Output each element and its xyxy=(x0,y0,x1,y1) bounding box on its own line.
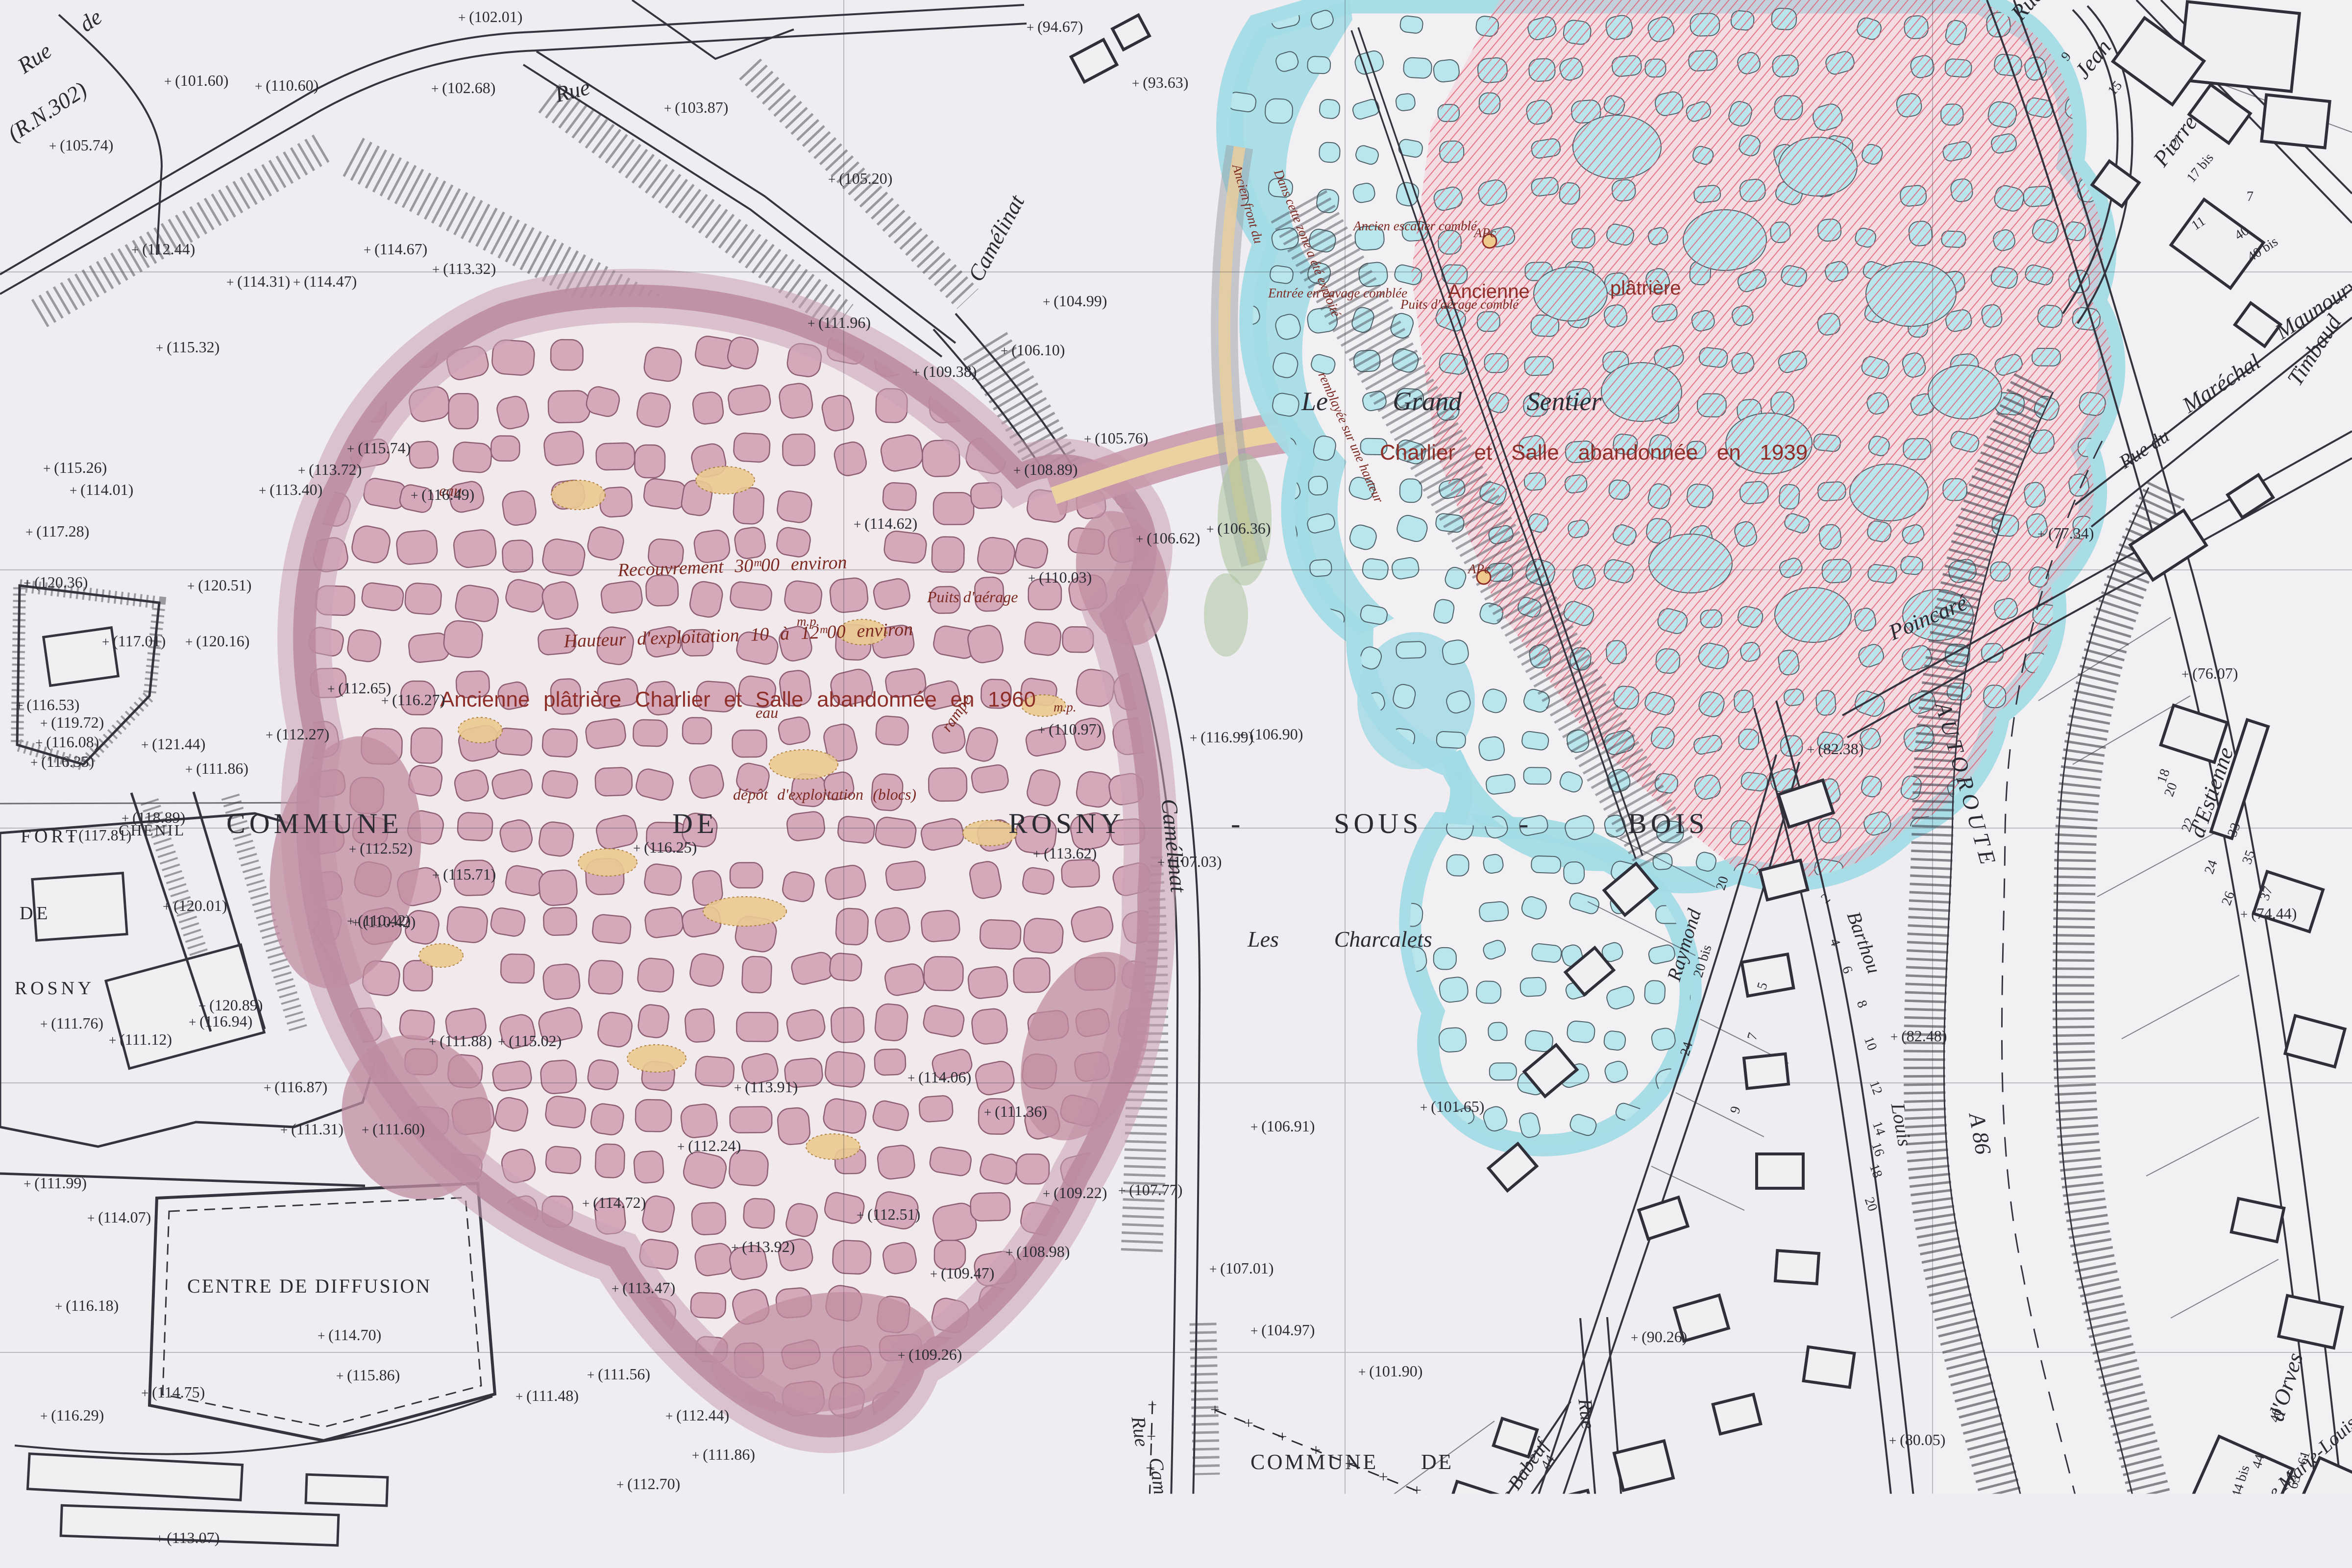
svg-text:+: + xyxy=(1144,1522,1153,1541)
svg-text:+: + xyxy=(1378,1468,1388,1486)
svg-text:+: + xyxy=(1244,1414,1253,1432)
svg-text:+: + xyxy=(1146,1459,1155,1477)
svg-text:+: + xyxy=(1412,1482,1421,1500)
map-base-layer: +++++++++++++++++++ xyxy=(0,0,2352,1568)
svg-text:+: + xyxy=(1479,1509,1489,1527)
svg-text:+: + xyxy=(1552,1542,1562,1560)
svg-text:+: + xyxy=(1210,1401,1220,1419)
svg-text:+: + xyxy=(1580,1556,1590,1568)
svg-text:+: + xyxy=(1311,1441,1321,1459)
apc-marker xyxy=(1477,570,1491,584)
svg-text:+: + xyxy=(1148,1396,1157,1414)
apc-marker xyxy=(1483,234,1496,248)
svg-text:+: + xyxy=(1145,1491,1154,1509)
svg-text:+: + xyxy=(1446,1495,1455,1513)
svg-text:+: + xyxy=(1513,1522,1522,1540)
map-canvas: +++++++++++++++++++ Rue de Paris(R.N.302… xyxy=(0,0,2352,1568)
svg-text:+: + xyxy=(1147,1427,1156,1445)
svg-text:+: + xyxy=(1345,1455,1354,1473)
svg-text:+: + xyxy=(1524,1527,1533,1545)
svg-text:+: + xyxy=(1143,1554,1152,1568)
svg-text:+: + xyxy=(1277,1428,1287,1446)
